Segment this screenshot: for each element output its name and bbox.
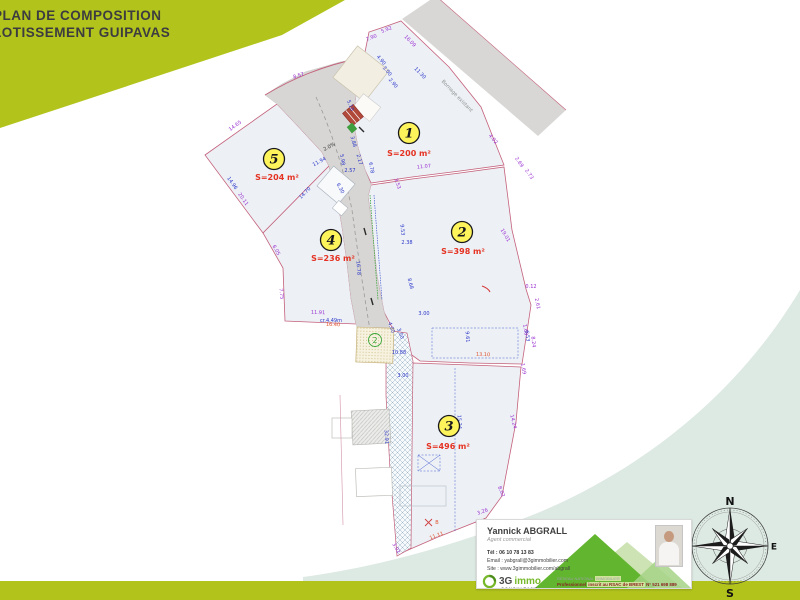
dimension-label: 11.91 xyxy=(311,310,326,316)
agent-role: Agent commercial xyxy=(487,537,531,543)
dimension-label: 3.00 xyxy=(418,311,429,317)
sub-badge-number: 2 xyxy=(372,336,377,345)
stipple-plot xyxy=(356,327,394,363)
agent-name: Yannick ABGRALL xyxy=(487,526,567,536)
page-title: PLAN DE COMPOSITION xyxy=(0,7,170,24)
network-caption: RÉSEAU NATIONAL IMMOBILIER xyxy=(557,576,621,581)
dimension-label: cr.4.49m xyxy=(320,318,342,324)
lot-number: 2 xyxy=(456,226,466,241)
dimension-label: 9.53 xyxy=(398,224,405,236)
compass-n: N xyxy=(725,495,734,508)
dimension-label: 2.61 xyxy=(533,298,541,310)
lot-area-label: S=204 m² xyxy=(255,173,299,182)
dimension-label: 16.78 xyxy=(355,261,362,276)
contact-card: Yannick ABGRALL Agent commercial Tél : 0… xyxy=(476,519,692,589)
lot-number: 3 xyxy=(444,420,453,435)
lot-area-label: S=200 m² xyxy=(387,149,431,158)
dimension-label: 7.75 xyxy=(277,288,284,300)
agent-email: Email : yabgrall@3gimmobilier.com xyxy=(487,558,568,564)
dimension-label: 32.91 xyxy=(383,430,390,445)
dimension-label: 13.10 xyxy=(476,352,491,358)
page-subtitle: LOTISSEMENT GUIPAVAS xyxy=(0,24,170,41)
lot-area-label: S=236 m² xyxy=(311,254,355,263)
logo-subtitle: CONSULTANT xyxy=(501,586,538,589)
lot-number: 5 xyxy=(269,153,278,168)
dimension-label: 8.24 xyxy=(529,336,536,348)
dimension-label: 2.69 xyxy=(513,156,524,169)
lot-area-label: S=496 m² xyxy=(426,442,470,451)
compass-s: S xyxy=(726,587,734,600)
dimension-label: 3.00 xyxy=(397,373,408,379)
compass-e: E xyxy=(771,543,777,553)
lot-number: 1 xyxy=(404,127,413,142)
neighbor-building-west-3 xyxy=(356,467,393,496)
lot-area-label: S=398 m² xyxy=(441,247,485,256)
neighbor-building-west-2 xyxy=(332,418,352,438)
agent-phone: Tél : 06 10 78 13 83 xyxy=(487,550,534,556)
compass-rose-icon: N S E O xyxy=(680,495,777,600)
plan-header: PLAN DE COMPOSITION LOTISSEMENT GUIPAVAS xyxy=(0,7,170,41)
3gimmo-logo-icon xyxy=(482,574,497,589)
dimension-label: 2.38 xyxy=(401,240,412,246)
site-plan: 2 8.577.905.9216.0911.30Bornage existant… xyxy=(0,0,800,600)
agent-site: Site : www.3gimmobilier.com/abgrall xyxy=(487,566,570,572)
legal-caption: Professionnel inscrit au RSAC de BREST N… xyxy=(557,582,677,587)
dimension-label: 9.61 xyxy=(464,331,471,343)
dimension-label: 2.73 xyxy=(523,168,534,181)
dimension-label: 2.57 xyxy=(344,168,355,174)
dimension-label: 0.12 xyxy=(525,284,536,290)
agent-photo xyxy=(655,525,683,567)
neighbor-parcel-line xyxy=(340,395,343,525)
dimension-label: 10.88 xyxy=(392,350,406,356)
lot-number: 4 xyxy=(326,234,335,249)
dimension-label: B xyxy=(435,520,439,526)
